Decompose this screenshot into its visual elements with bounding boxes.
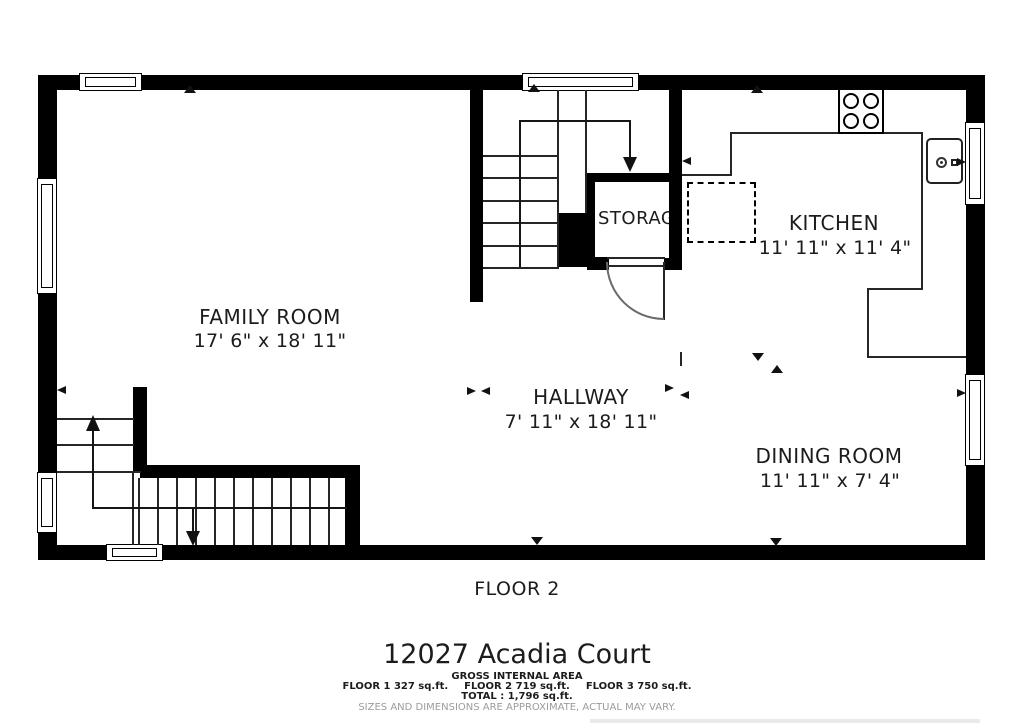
stairs-up-arrow-icon: [86, 415, 100, 431]
window-glass: [41, 478, 53, 527]
wall-stair-turn: [133, 387, 147, 471]
stair-tread: [483, 177, 559, 179]
stair-tread: [138, 478, 140, 545]
counter-edge: [921, 132, 923, 290]
window-glass: [85, 77, 136, 87]
dim-marker-left-icon: [680, 391, 689, 399]
wall-stairwell-left: [470, 90, 483, 302]
stair-tread: [483, 155, 559, 157]
stair-tread: [290, 478, 292, 545]
burner-icon: [843, 113, 859, 129]
dim-marker-up-icon: [528, 84, 540, 92]
room-storage: STORAGE: [595, 182, 669, 257]
address-title: 12027 Acadia Court: [10, 639, 1024, 670]
wall-storage-left: [587, 173, 595, 266]
dim-marker-left-icon: [57, 386, 66, 394]
room-hallway-label: HALLWAY: [533, 385, 629, 409]
window-right-upper: [965, 122, 985, 205]
wall-stair-landing-block: [559, 213, 588, 267]
stair-tread: [57, 444, 134, 446]
stair-divider: [585, 90, 587, 213]
dim-marker-down-icon: [752, 353, 764, 361]
dim-marker-down-icon: [531, 537, 543, 545]
stair-tread: [233, 478, 235, 545]
dim-marker-right-icon: [665, 384, 674, 392]
cutoff-text-remnant: [590, 719, 980, 723]
window-glass: [41, 184, 53, 288]
stair-tread: [176, 478, 178, 545]
window-glass: [112, 548, 157, 557]
wall-lower-stair-right: [345, 465, 360, 553]
counter-edge: [867, 356, 966, 358]
stair-walk-line: [192, 507, 194, 533]
window-glass: [528, 77, 633, 87]
disclaimer-line: SIZES AND DIMENSIONS ARE APPROXIMATE, AC…: [10, 702, 1024, 713]
stair-walk-line: [519, 120, 631, 122]
stair-tread: [252, 478, 254, 545]
stairs-down-arrow-icon: [623, 157, 637, 172]
room-family-label: FAMILY ROOM: [199, 305, 341, 329]
faucet-arrow-icon: [957, 158, 966, 166]
dim-marker-right-icon: [467, 387, 476, 395]
stair-tread: [328, 478, 330, 545]
wall-bottom: [38, 545, 985, 560]
dim-marker-down-icon: [770, 538, 782, 546]
floor-label: FLOOR 2: [10, 578, 1024, 600]
wall-kitchen-left: [669, 90, 682, 270]
stair-tread: [57, 471, 141, 473]
stair-tread: [309, 478, 311, 545]
room-kitchen-label: KITCHEN: [789, 211, 879, 235]
room-family-dims: 17' 6" x 18' 11": [194, 330, 347, 352]
room-hallway-dims: 7' 11" x 18' 11": [505, 411, 658, 433]
stair-tread: [483, 200, 559, 202]
dim-marker-left-icon: [481, 387, 490, 395]
window-left-upper: [37, 178, 57, 294]
dim-marker-up-icon: [771, 365, 783, 373]
stair-walk-line: [519, 122, 521, 267]
counter-edge: [730, 132, 923, 134]
counter-edge: [682, 174, 732, 176]
stair-walk-line: [92, 507, 347, 509]
window-glass: [969, 128, 981, 199]
total-area-line: TOTAL : 1,796 sq.ft.: [10, 691, 1024, 702]
stair-tread: [483, 267, 559, 269]
stair-tread: [214, 478, 216, 545]
floor-plan-page: STORAGE: [0, 0, 1024, 723]
stair-tread: [271, 478, 273, 545]
window-right-lower: [965, 374, 985, 466]
wall-kitchen-left-foot: [664, 258, 682, 270]
stair-tread: [483, 222, 559, 224]
stair-tread: [157, 478, 159, 545]
burner-icon: [863, 93, 879, 109]
stair-walk-line: [629, 120, 631, 158]
room-storage-label: STORAGE: [598, 208, 669, 229]
dim-marker-right-icon: [957, 389, 966, 397]
stair-tread: [483, 245, 559, 247]
window-bottom-left: [106, 544, 163, 561]
faucet-dot-icon: [940, 161, 943, 164]
window-left-lower: [37, 472, 57, 533]
window-glass: [969, 380, 981, 460]
burner-icon: [843, 93, 859, 109]
dim-marker-up-icon: [751, 85, 763, 93]
dim-marker-left-icon: [682, 157, 691, 165]
room-kitchen-dims: 11' 11" x 11' 4": [759, 237, 912, 259]
wall-storage-top: [587, 173, 669, 182]
counter-edge: [730, 133, 732, 176]
burner-icon: [863, 113, 879, 129]
appliance-dashed-outline: [687, 182, 756, 243]
stove-icon: [838, 88, 884, 134]
window-top-left: [79, 73, 142, 91]
counter-edge: [867, 288, 869, 358]
room-dining-label: DINING ROOM: [755, 444, 902, 468]
counter-edge: [868, 288, 923, 290]
door-opening-line: [607, 257, 665, 259]
wall-lower-stair-top: [140, 465, 360, 478]
door-swing-arc: [606, 262, 664, 320]
room-dining-dims: 11' 11" x 7' 4": [760, 470, 900, 492]
dim-tick: [680, 352, 682, 366]
stairs-down-arrow-icon: [186, 531, 200, 546]
stair-walk-line: [92, 430, 94, 508]
dim-marker-up-icon: [184, 85, 196, 93]
